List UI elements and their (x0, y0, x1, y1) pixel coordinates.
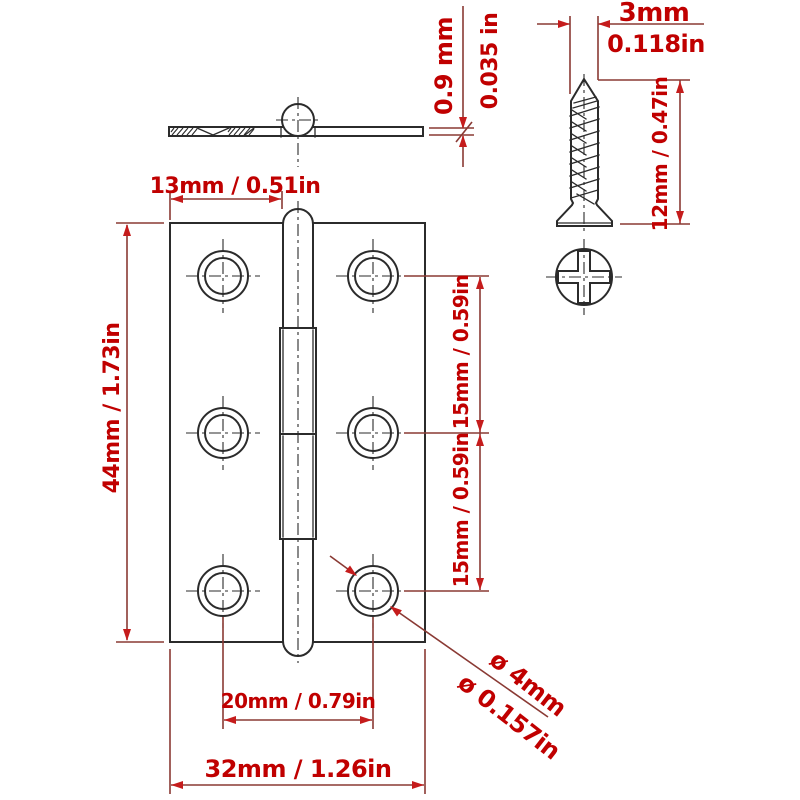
screw-diameter-mm-label: 3mm (619, 0, 690, 28)
hinge-width-label: 32mm / 1.26in (205, 755, 392, 783)
hole-spacing-upper-label: 15mm / 0.59in (449, 275, 473, 430)
thickness-mm-label: 0.9 mm (430, 17, 458, 115)
thickness-in-label: 0.035 in (478, 13, 503, 109)
thickness-dimension: 0.9 mm 0.035 in (429, 6, 503, 167)
hole-spacing-lower-label: 15mm / 0.59in (449, 433, 473, 588)
hinge-dimension-drawing: 0.9 mm 0.035 in 3mm 0.118in 12mm / 0.47i… (0, 0, 800, 800)
screw-diameter-dimension: 3mm 0.118in 12mm / 0.47in (537, 0, 705, 231)
hinge-height-label: 44mm / 1.73in (100, 323, 125, 494)
leaf-width-label: 13mm / 0.51in (150, 174, 321, 199)
width-dimension: 32mm / 1.26in (170, 649, 425, 794)
hole-span-label: 20mm / 0.79in (221, 689, 376, 713)
hinge-front-view (170, 201, 425, 663)
screw-length-label: 12mm / 0.47in (648, 77, 672, 232)
hinge-side-view (169, 97, 423, 167)
screw-side-view (546, 74, 622, 315)
screw-diameter-in-label: 0.118in (607, 30, 705, 58)
hinge-pin (280, 201, 316, 663)
height-dimension: 44mm / 1.73in (100, 223, 164, 642)
